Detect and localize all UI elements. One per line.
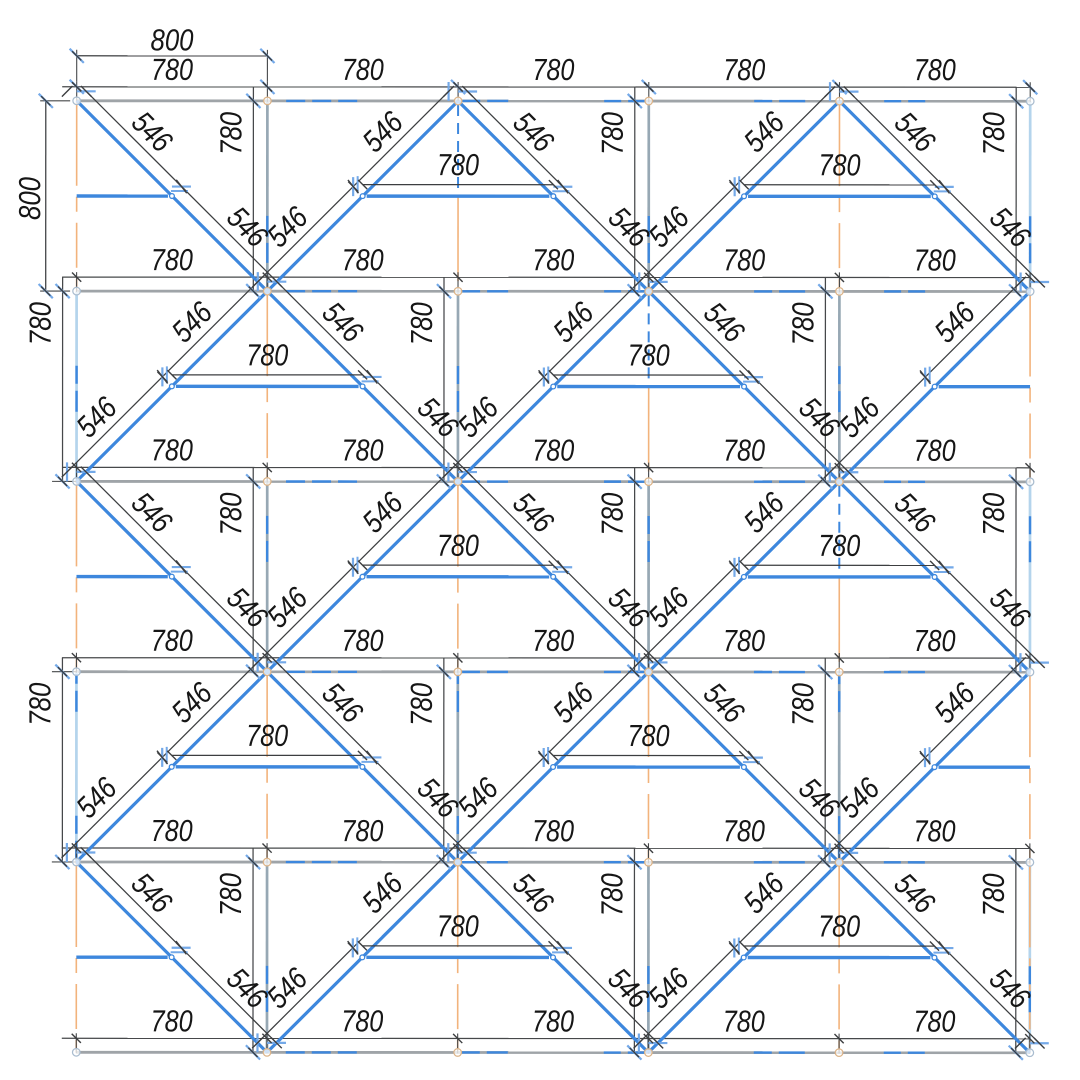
svg-text:780: 780 xyxy=(24,302,58,345)
svg-text:780: 780 xyxy=(818,148,860,182)
svg-text:780: 780 xyxy=(723,434,765,468)
svg-text:780: 780 xyxy=(341,624,383,658)
svg-text:780: 780 xyxy=(246,338,288,372)
svg-text:780: 780 xyxy=(723,814,765,848)
svg-text:780: 780 xyxy=(437,529,479,563)
svg-text:780: 780 xyxy=(23,683,57,726)
svg-text:780: 780 xyxy=(342,243,384,277)
svg-text:780: 780 xyxy=(595,873,629,916)
svg-text:780: 780 xyxy=(342,434,384,468)
svg-text:780: 780 xyxy=(405,683,439,726)
svg-text:780: 780 xyxy=(341,814,383,848)
svg-text:780: 780 xyxy=(913,814,955,848)
svg-text:780: 780 xyxy=(214,492,248,535)
svg-text:780: 780 xyxy=(437,909,479,943)
svg-text:780: 780 xyxy=(628,719,670,753)
svg-text:780: 780 xyxy=(151,53,193,87)
svg-text:780: 780 xyxy=(786,683,820,726)
svg-text:780: 780 xyxy=(914,624,956,658)
svg-text:780: 780 xyxy=(341,1004,383,1038)
svg-text:780: 780 xyxy=(342,53,384,87)
svg-text:780: 780 xyxy=(151,624,193,658)
svg-text:780: 780 xyxy=(532,1004,574,1038)
svg-text:780: 780 xyxy=(532,243,574,277)
svg-text:780: 780 xyxy=(532,53,574,87)
svg-text:780: 780 xyxy=(723,53,765,87)
svg-text:780: 780 xyxy=(977,493,1011,536)
svg-text:780: 780 xyxy=(977,112,1011,155)
svg-text:780: 780 xyxy=(214,873,248,916)
svg-text:800: 800 xyxy=(13,177,47,220)
svg-text:780: 780 xyxy=(214,112,248,155)
svg-text:780: 780 xyxy=(818,910,860,944)
svg-text:780: 780 xyxy=(532,624,574,658)
svg-text:780: 780 xyxy=(913,1005,955,1039)
svg-text:780: 780 xyxy=(151,243,193,277)
svg-text:780: 780 xyxy=(818,529,860,563)
svg-text:780: 780 xyxy=(532,434,574,468)
svg-text:780: 780 xyxy=(723,243,765,277)
svg-text:780: 780 xyxy=(596,112,630,155)
svg-text:780: 780 xyxy=(723,624,765,658)
svg-text:780: 780 xyxy=(532,814,574,848)
svg-text:780: 780 xyxy=(723,1005,765,1039)
svg-text:780: 780 xyxy=(246,719,288,753)
svg-text:780: 780 xyxy=(786,302,820,345)
svg-text:780: 780 xyxy=(914,53,956,87)
svg-text:780: 780 xyxy=(151,433,193,467)
svg-text:780: 780 xyxy=(977,873,1011,916)
svg-text:780: 780 xyxy=(405,302,439,345)
svg-text:780: 780 xyxy=(596,493,630,536)
svg-text:780: 780 xyxy=(151,1004,193,1038)
svg-text:780: 780 xyxy=(914,434,956,468)
svg-text:780: 780 xyxy=(914,243,956,277)
svg-text:780: 780 xyxy=(437,148,479,182)
svg-text:780: 780 xyxy=(151,814,193,848)
svg-text:780: 780 xyxy=(628,339,670,373)
